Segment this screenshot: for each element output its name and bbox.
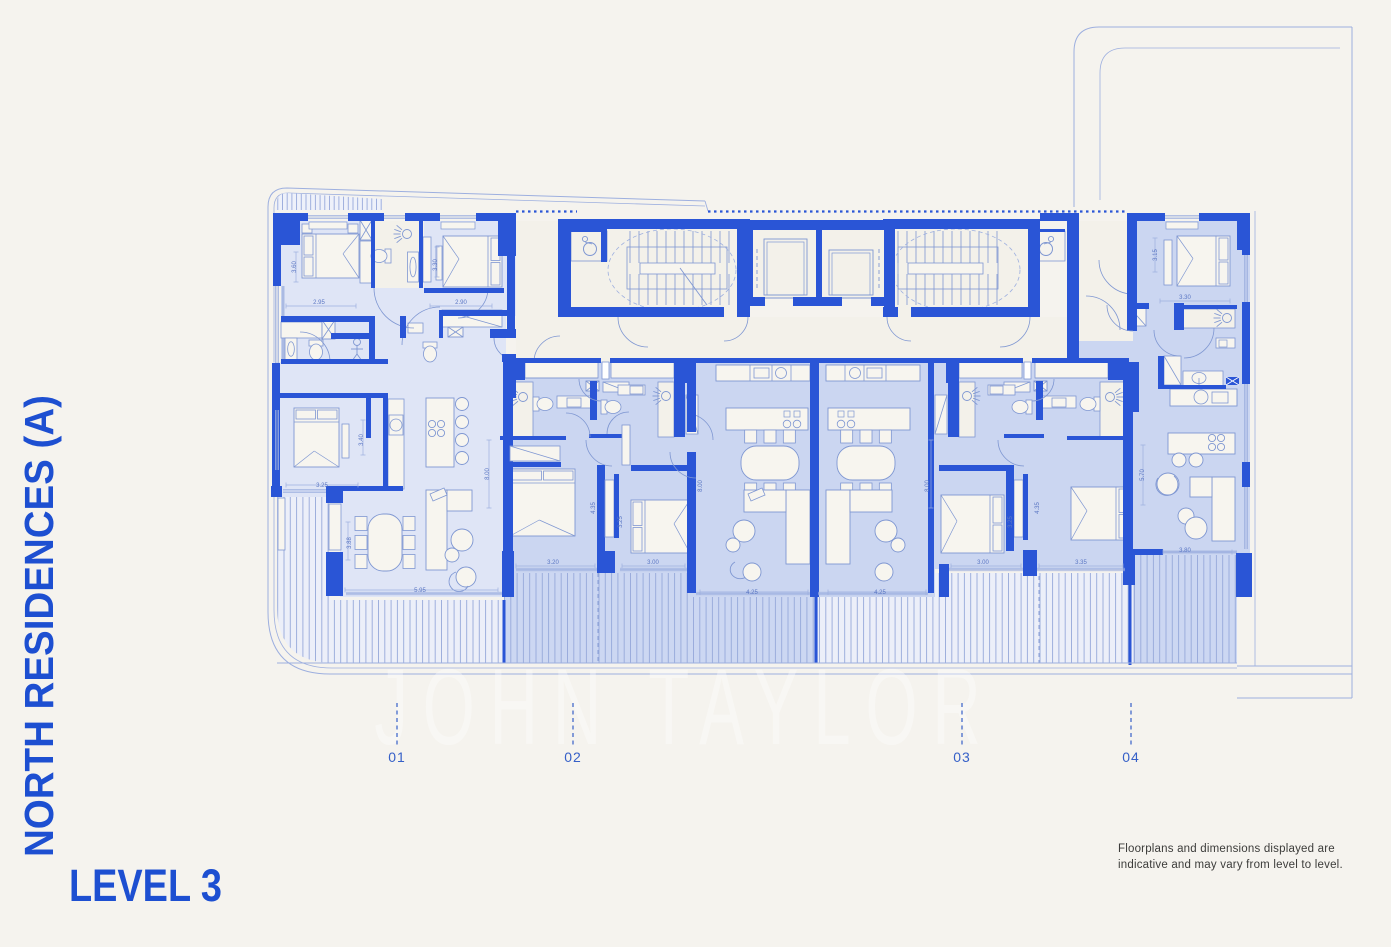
svg-text:01: 01 bbox=[388, 749, 406, 765]
svg-text:NORTH RESIDENCES (A): NORTH RESIDENCES (A) bbox=[16, 395, 62, 857]
svg-text:8.00: 8.00 bbox=[925, 480, 931, 492]
svg-text:03: 03 bbox=[953, 749, 971, 765]
svg-text:3.60: 3.60 bbox=[292, 261, 298, 273]
svg-text:8.00: 8.00 bbox=[485, 468, 491, 480]
svg-text:4.25: 4.25 bbox=[874, 590, 886, 596]
svg-text:3.20: 3.20 bbox=[547, 560, 559, 566]
svg-text:indicative and may vary from l: indicative and may vary from level to le… bbox=[1118, 859, 1343, 871]
svg-text:3.30: 3.30 bbox=[1179, 295, 1191, 301]
svg-text:3.35: 3.35 bbox=[1075, 560, 1087, 566]
svg-text:3.15: 3.15 bbox=[1153, 249, 1159, 261]
svg-text:Floorplans and dimensions disp: Floorplans and dimensions displayed are bbox=[1118, 843, 1335, 855]
svg-text:4.35: 4.35 bbox=[591, 502, 597, 514]
svg-text:LEVEL 3: LEVEL 3 bbox=[69, 860, 222, 911]
svg-text:3.25: 3.25 bbox=[618, 516, 624, 528]
svg-text:2.95: 2.95 bbox=[313, 300, 325, 306]
svg-text:3.80: 3.80 bbox=[1179, 548, 1191, 554]
svg-text:5.95: 5.95 bbox=[414, 588, 426, 594]
svg-text:JOHN TAYLOR: JOHN TAYLOR bbox=[374, 648, 995, 768]
svg-text:04: 04 bbox=[1122, 749, 1140, 765]
svg-text:3.25: 3.25 bbox=[316, 483, 328, 489]
svg-text:02: 02 bbox=[564, 749, 582, 765]
svg-text:4.25: 4.25 bbox=[746, 590, 758, 596]
svg-text:3.25: 3.25 bbox=[1008, 516, 1014, 528]
svg-text:8.00: 8.00 bbox=[698, 480, 704, 492]
svg-text:3.40: 3.40 bbox=[359, 434, 365, 446]
svg-text:5.70: 5.70 bbox=[1140, 469, 1146, 481]
svg-text:4.35: 4.35 bbox=[1035, 502, 1041, 514]
svg-text:3.88: 3.88 bbox=[347, 537, 353, 549]
svg-text:3.30: 3.30 bbox=[433, 259, 439, 271]
svg-text:2.90: 2.90 bbox=[455, 300, 467, 306]
svg-text:3.00: 3.00 bbox=[647, 560, 659, 566]
svg-text:3.00: 3.00 bbox=[977, 560, 989, 566]
